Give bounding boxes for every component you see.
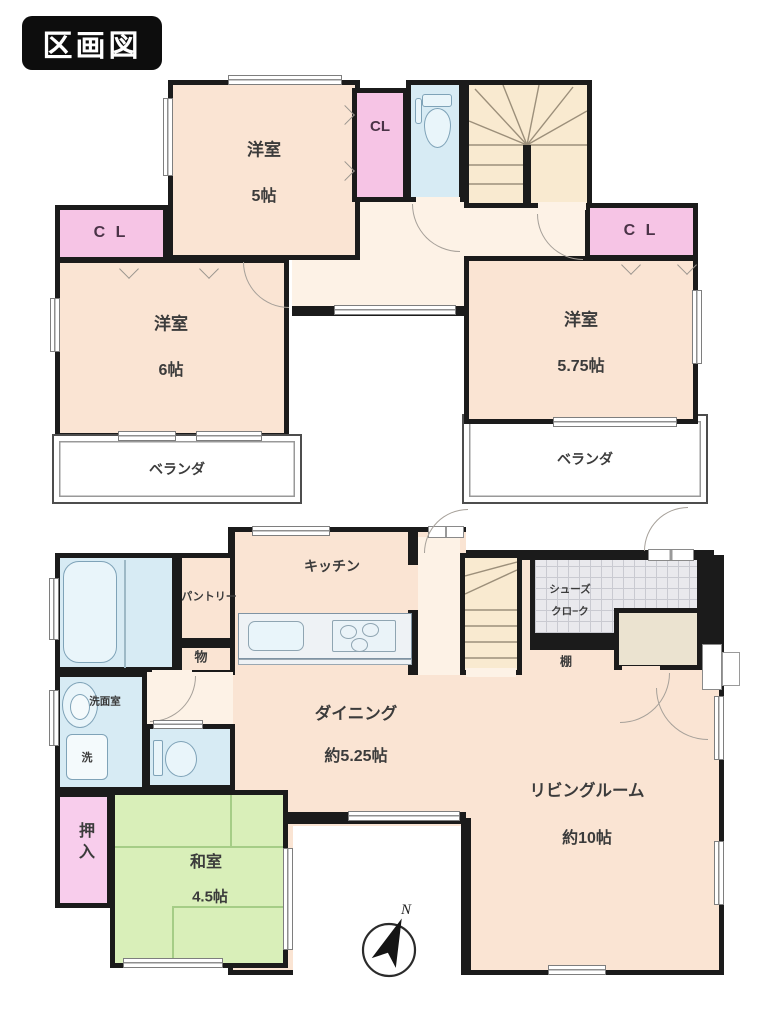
floor-plan-canvas: 区画図 ベランダ ベランダ xyxy=(0,0,766,1024)
burner-icon xyxy=(351,638,368,652)
window xyxy=(49,578,59,640)
window xyxy=(118,431,176,441)
room-size-label: 5.75帖 xyxy=(557,352,604,376)
japanese-room-label: 和室 xyxy=(190,848,222,872)
oshiire-label: 押入 xyxy=(72,822,96,864)
entrance xyxy=(614,608,702,670)
room-size-label: 5帖 xyxy=(252,182,277,206)
dining-label: ダイニング xyxy=(315,700,398,724)
room-western-5 xyxy=(168,80,360,260)
door-arc xyxy=(644,507,688,551)
tatami-line xyxy=(172,906,174,963)
window xyxy=(123,958,223,968)
wall xyxy=(461,818,471,975)
shelf-label: 棚 xyxy=(560,653,572,670)
closet-label: C L xyxy=(624,222,659,240)
closet-label: CL xyxy=(368,118,392,135)
window xyxy=(692,290,702,364)
stairs-1f-treads xyxy=(465,558,517,670)
room-western-575 xyxy=(464,256,698,424)
page-title: 区画図 xyxy=(22,16,162,70)
door-opening xyxy=(538,202,586,210)
bathtub-icon xyxy=(63,561,117,663)
toilet-bowl-icon xyxy=(165,741,197,777)
window xyxy=(348,811,460,821)
door-opening xyxy=(466,668,516,677)
entry-step xyxy=(722,652,740,686)
sink-icon xyxy=(248,621,304,651)
window xyxy=(553,417,677,427)
washbasin-bowl-icon xyxy=(70,694,90,720)
window xyxy=(334,305,456,315)
window xyxy=(163,98,173,176)
storage-label: 物 xyxy=(194,647,207,666)
toilet-tank-icon xyxy=(153,740,163,776)
washroom-label: 洗面室 xyxy=(89,694,121,709)
veranda-label: ベランダ xyxy=(557,449,613,469)
veranda-label: ベランダ xyxy=(149,459,205,479)
living-size-label: 約10帖 xyxy=(562,824,612,848)
kitchen-label: キッチン xyxy=(304,556,360,576)
dining-size-label: 約5.25帖 xyxy=(324,742,387,766)
closet-label: C L xyxy=(94,224,129,242)
stairs-2f-treads xyxy=(469,85,587,203)
compass-icon: N xyxy=(344,896,434,988)
room-label: 洋室 xyxy=(247,136,281,161)
window xyxy=(548,965,606,975)
window xyxy=(252,526,330,536)
shelf-wall xyxy=(530,638,618,650)
burner-icon xyxy=(362,623,379,637)
compass-north-label: N xyxy=(400,902,412,918)
laundry-label: 洗 xyxy=(82,749,93,765)
window xyxy=(714,841,724,905)
window xyxy=(228,75,342,85)
japanese-room xyxy=(110,790,288,968)
veranda-left: ベランダ xyxy=(52,434,302,504)
tatami-line xyxy=(230,795,232,848)
room-size-label: 6帖 xyxy=(159,356,184,380)
pantry-label: パントリー xyxy=(181,588,237,604)
counter-edge xyxy=(238,659,412,665)
window xyxy=(153,720,203,729)
wall xyxy=(700,555,724,647)
closet-top xyxy=(352,88,408,202)
shoe-closet-label: シューズ xyxy=(549,582,590,597)
hall-1f xyxy=(418,537,460,675)
room-label: 洋室 xyxy=(564,306,598,331)
bath-divider xyxy=(124,560,126,668)
window xyxy=(50,298,60,352)
window xyxy=(714,696,724,760)
burner-icon xyxy=(340,625,357,639)
shoe-closet-label: クロ−ク xyxy=(551,604,589,619)
toilet-handle-icon xyxy=(415,98,422,124)
door-arc xyxy=(424,509,468,553)
toilet-tank-icon xyxy=(422,94,452,107)
entry-door xyxy=(702,644,722,690)
living-label: リビングルーム xyxy=(529,777,644,801)
window xyxy=(283,848,293,950)
veranda-right: ベランダ xyxy=(462,414,708,504)
window xyxy=(49,690,59,746)
window xyxy=(196,431,262,441)
room-label: 洋室 xyxy=(154,310,188,335)
wall xyxy=(408,527,418,565)
japanese-room-size-label: 4.5帖 xyxy=(192,886,228,907)
